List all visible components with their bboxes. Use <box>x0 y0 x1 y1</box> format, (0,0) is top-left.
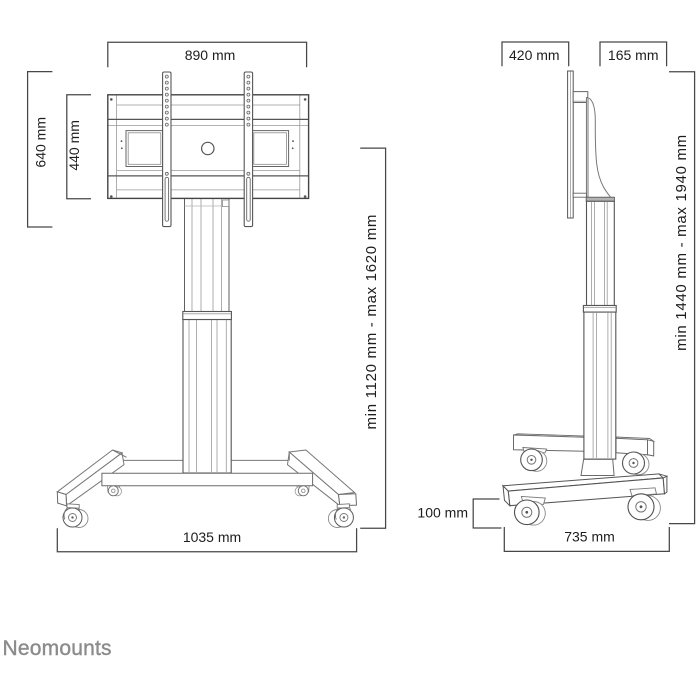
svg-text:890 mm: 890 mm <box>185 47 236 63</box>
svg-text:1035 mm: 1035 mm <box>183 529 241 545</box>
svg-text:min 1120 mm - max 1620 mm: min 1120 mm - max 1620 mm <box>363 214 380 430</box>
svg-text:420 mm: 420 mm <box>509 47 560 63</box>
svg-text:165 mm: 165 mm <box>608 47 659 63</box>
svg-text:640 mm: 640 mm <box>32 117 48 168</box>
svg-text:min 1440 mm - max 1940 mm: min 1440 mm - max 1940 mm <box>673 134 690 351</box>
svg-text:100 mm: 100 mm <box>417 505 468 521</box>
svg-text:735 mm: 735 mm <box>564 529 615 545</box>
svg-text:440 mm: 440 mm <box>66 120 82 171</box>
svg-text:Neomounts: Neomounts <box>3 637 112 660</box>
